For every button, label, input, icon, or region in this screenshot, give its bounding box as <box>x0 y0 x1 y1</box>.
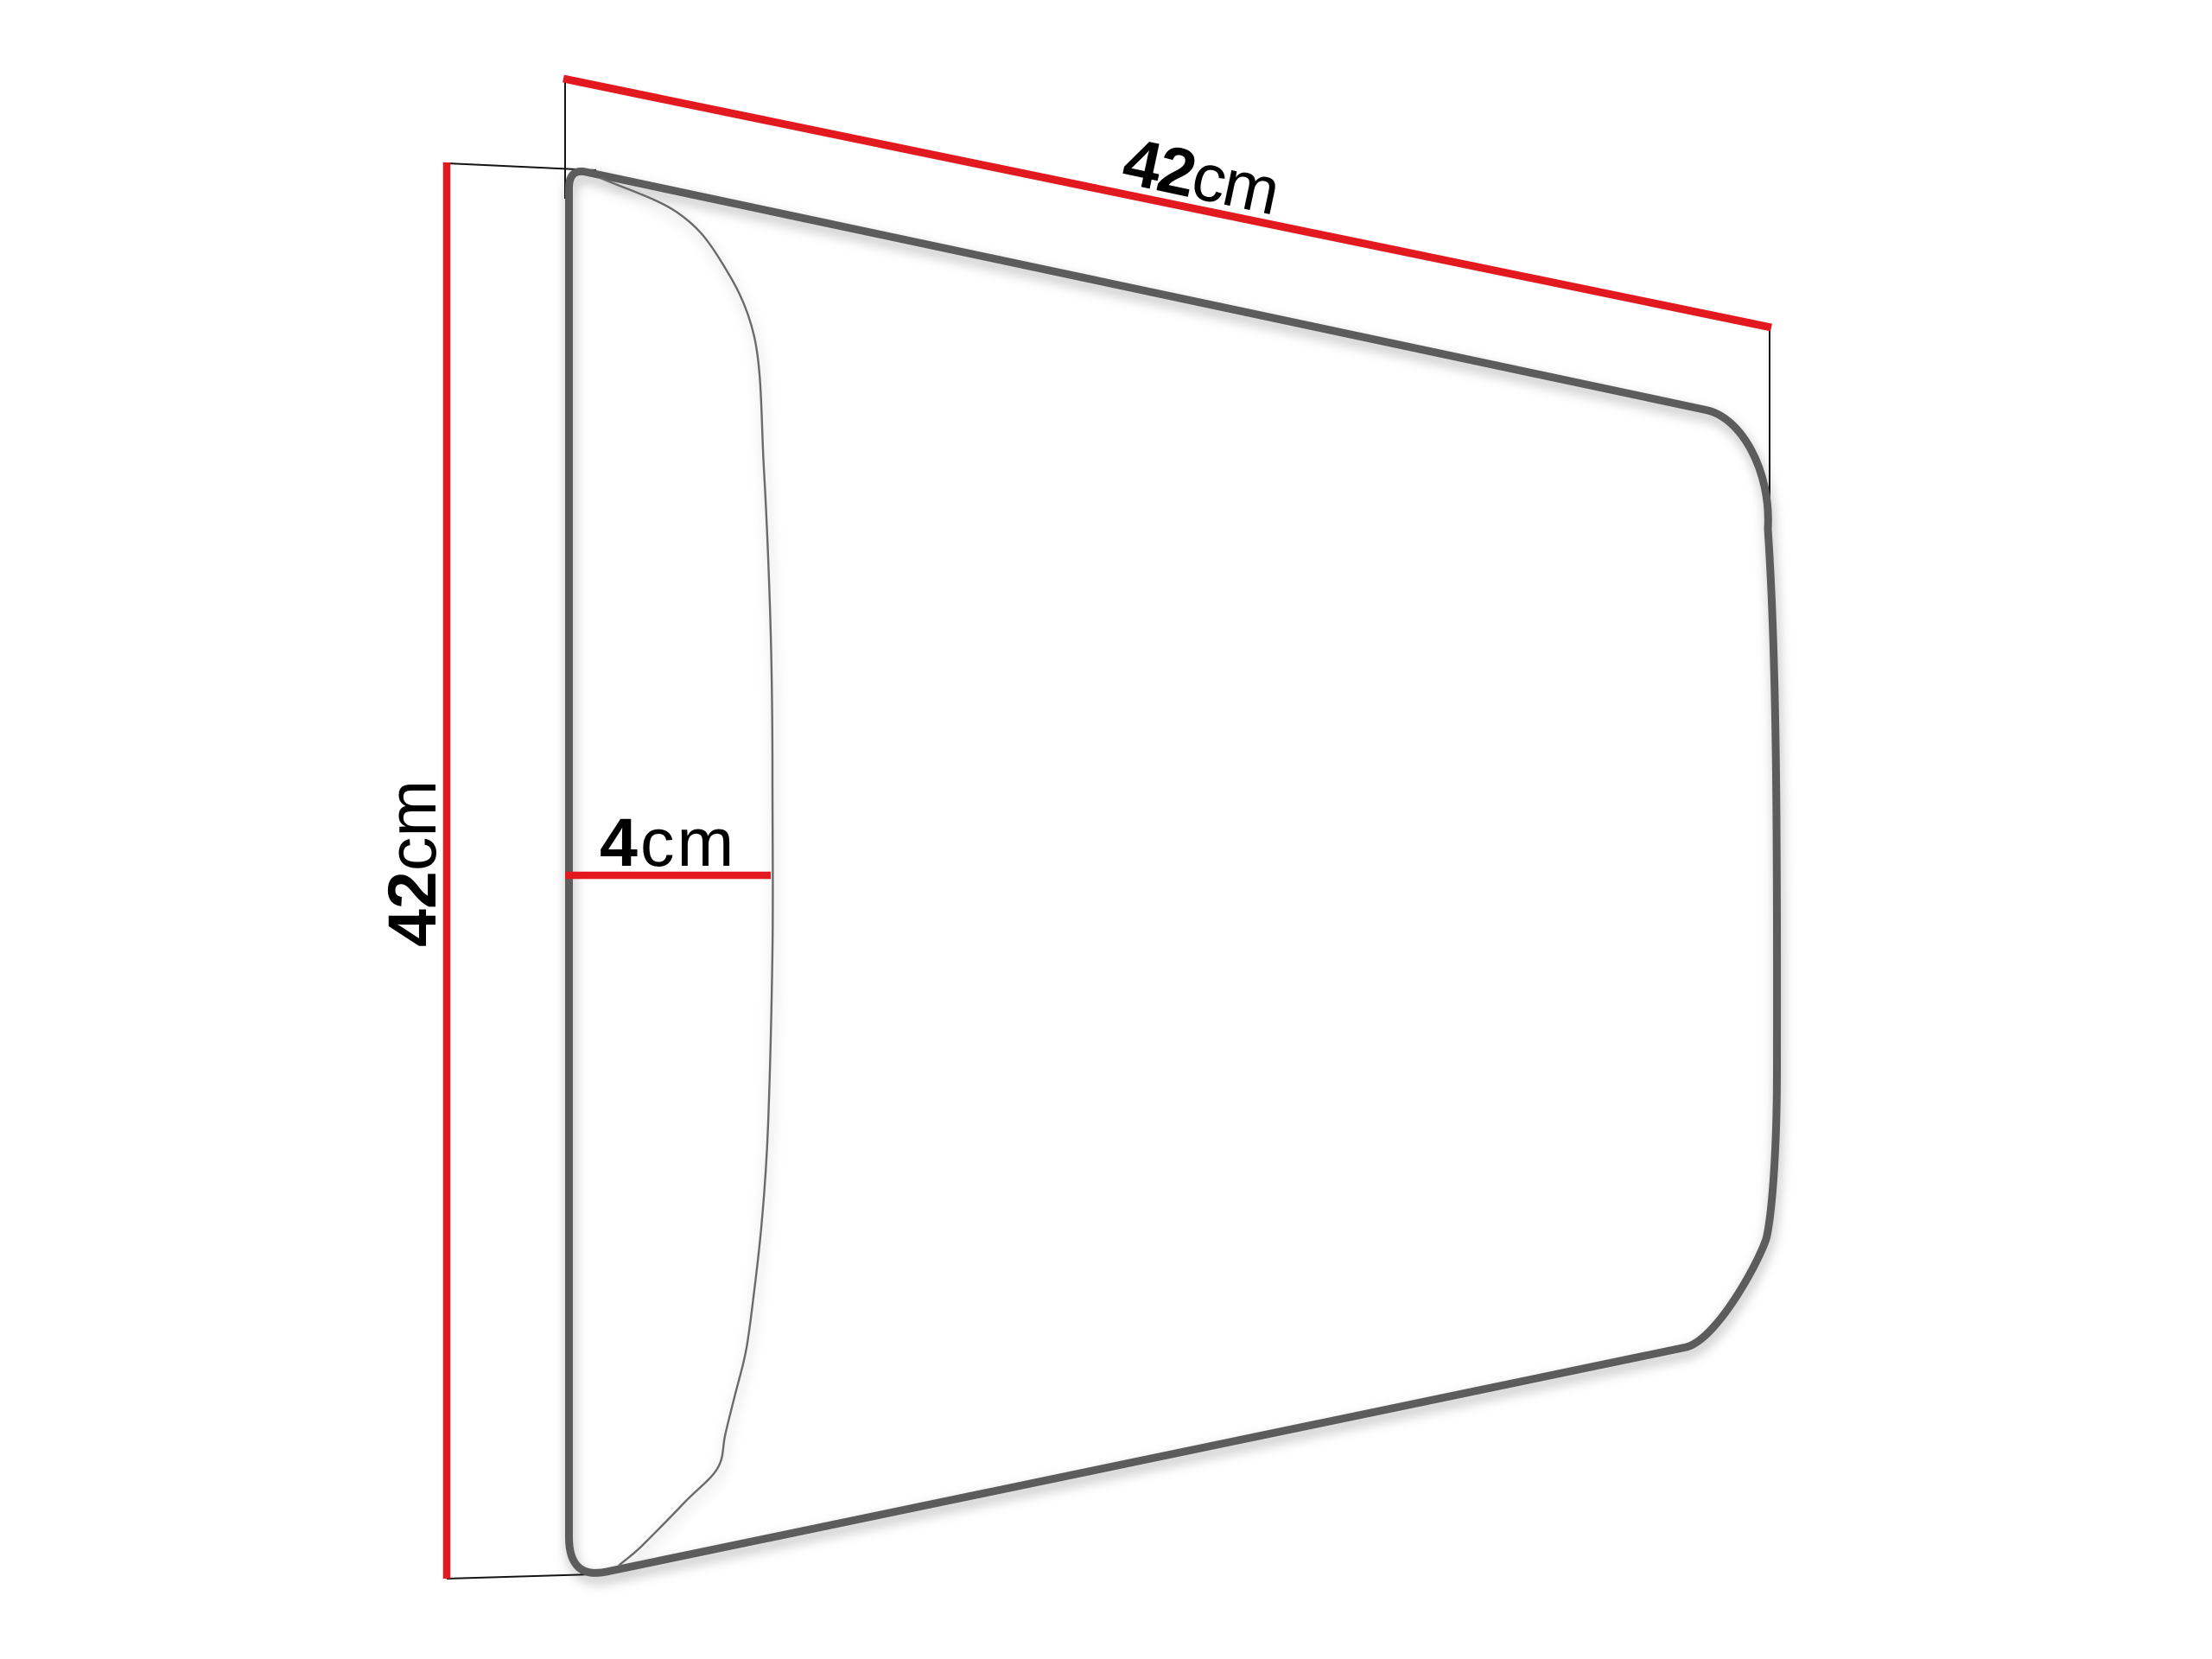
svg-text:42cm: 42cm <box>373 780 450 947</box>
svg-text:4cm: 4cm <box>600 804 736 880</box>
